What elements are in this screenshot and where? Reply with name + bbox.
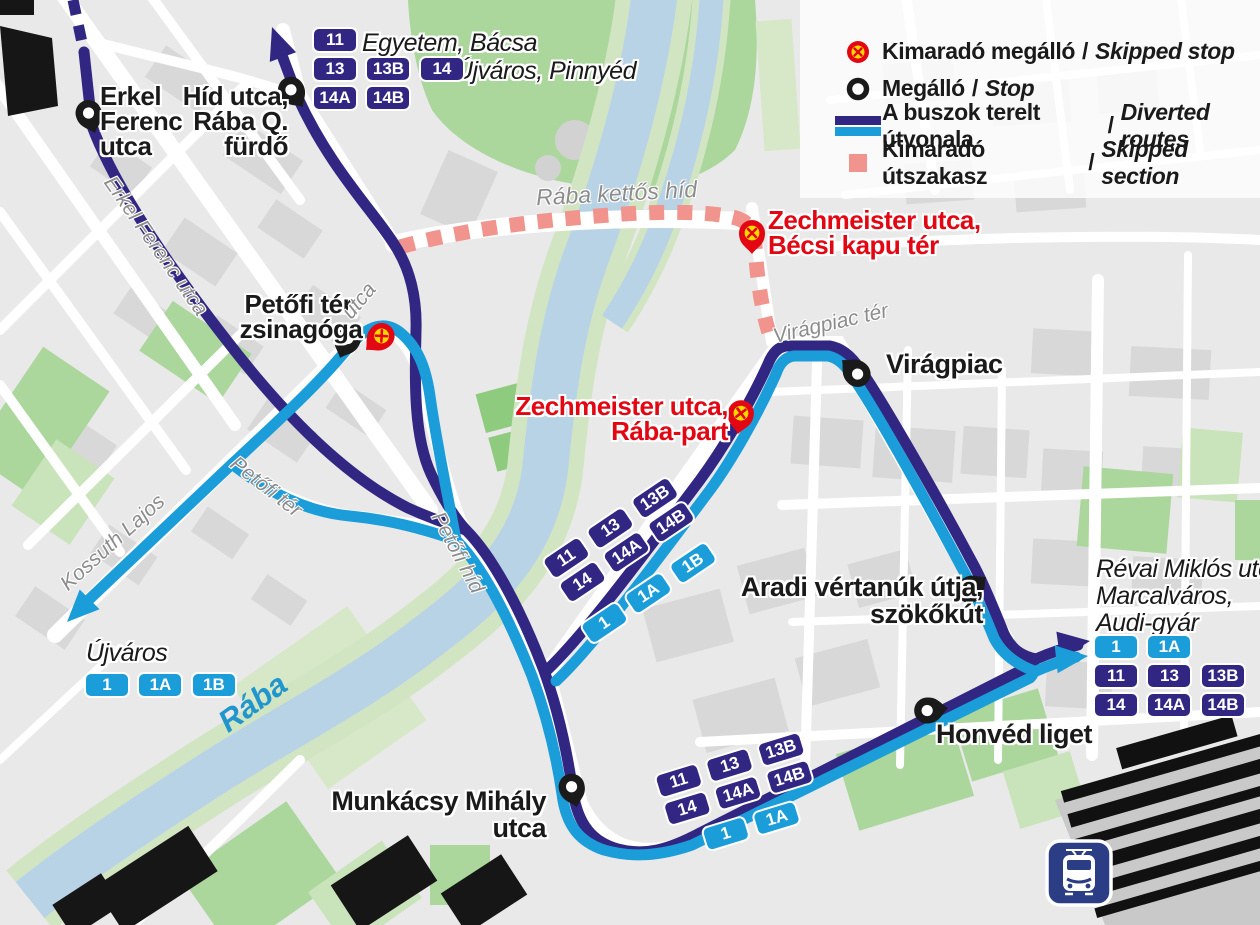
legend-item-skipped-stop: Kimaradó megálló / Skipped stop	[834, 33, 1260, 70]
legend-label-en: Skipped stop	[1095, 38, 1235, 65]
stop-label-hid-utca: Híd utca, Rába Q. fürdő	[168, 84, 288, 159]
legend-item-skipped-section: Kimaradó útszakasz / Skipped section	[834, 144, 1260, 181]
route-badge: 14A	[312, 85, 358, 111]
route-badge: 13	[312, 56, 358, 82]
route-badge: 11	[1093, 663, 1139, 689]
route-badge: 1	[84, 672, 130, 698]
skipped-stop-label-becsi-kapu: Zechmeister utca, Bécsi kapu tér	[768, 208, 981, 258]
stop-label-viragpiac: Virágpiac	[886, 352, 1003, 377]
skipped-section-icon	[834, 154, 882, 172]
skipped-stop-icon	[834, 39, 882, 65]
destination-label-ujvaros: Újváros	[86, 640, 167, 667]
train-station-icon	[1047, 841, 1111, 905]
route-badge: 1A	[1146, 634, 1192, 660]
route-badge: 1B	[191, 672, 237, 698]
legend-label-hu: Kimaradó útszakasz	[882, 136, 1081, 190]
legend-separator: /	[1088, 149, 1094, 176]
route-badge: 14B	[1200, 692, 1246, 718]
route-badge: 14A	[1146, 692, 1192, 718]
destination-label-ujvaros-pinnyed: Újváros, Pinnyéd	[455, 58, 636, 85]
route-badge: 14	[1093, 692, 1139, 718]
legend-label-en: Skipped section	[1101, 136, 1260, 190]
legend: Kimaradó megálló / Skipped stop Megálló …	[834, 33, 1260, 181]
route-badge: 14B	[365, 85, 411, 111]
skipped-stop-label-raba-part: Zechmeister utca, Rába-part	[508, 394, 728, 444]
legend-separator: /	[1082, 38, 1088, 65]
stop-label-aradi: Aradi vértanúk útja, szökőkút	[738, 574, 983, 628]
route-badge: 1	[1093, 634, 1139, 660]
stop-label-honved-liget: Honvéd liget	[936, 722, 1092, 747]
stop-icon	[834, 76, 882, 102]
route-badge: 13	[1146, 663, 1192, 689]
route-badge: 13B	[1200, 663, 1246, 689]
badge-group-ujvaros: 1 1A 1B	[84, 672, 240, 701]
route-badge: 13B	[365, 56, 411, 82]
legend-label-hu: Kimaradó megálló	[882, 38, 1075, 65]
stop-label-munkacsy: Munkácsy Mihály utca	[330, 788, 546, 842]
route-badge: 1A	[137, 672, 183, 698]
route-badge: 11	[312, 27, 358, 53]
route-badge: 14	[419, 56, 465, 82]
diversion-map: Kimaradó megálló / Skipped stop Megálló …	[0, 0, 1260, 925]
badge-group-east: 1 1A 11 13 13B 14 14A 14B	[1093, 634, 1249, 721]
diverted-routes-icon	[834, 114, 882, 138]
destination-label-revai: Révai Miklós utca, Marcalváros, Audi-gyá…	[1096, 556, 1260, 637]
badge-group-north: 11 13 13B 14 14A 14B	[312, 27, 468, 114]
